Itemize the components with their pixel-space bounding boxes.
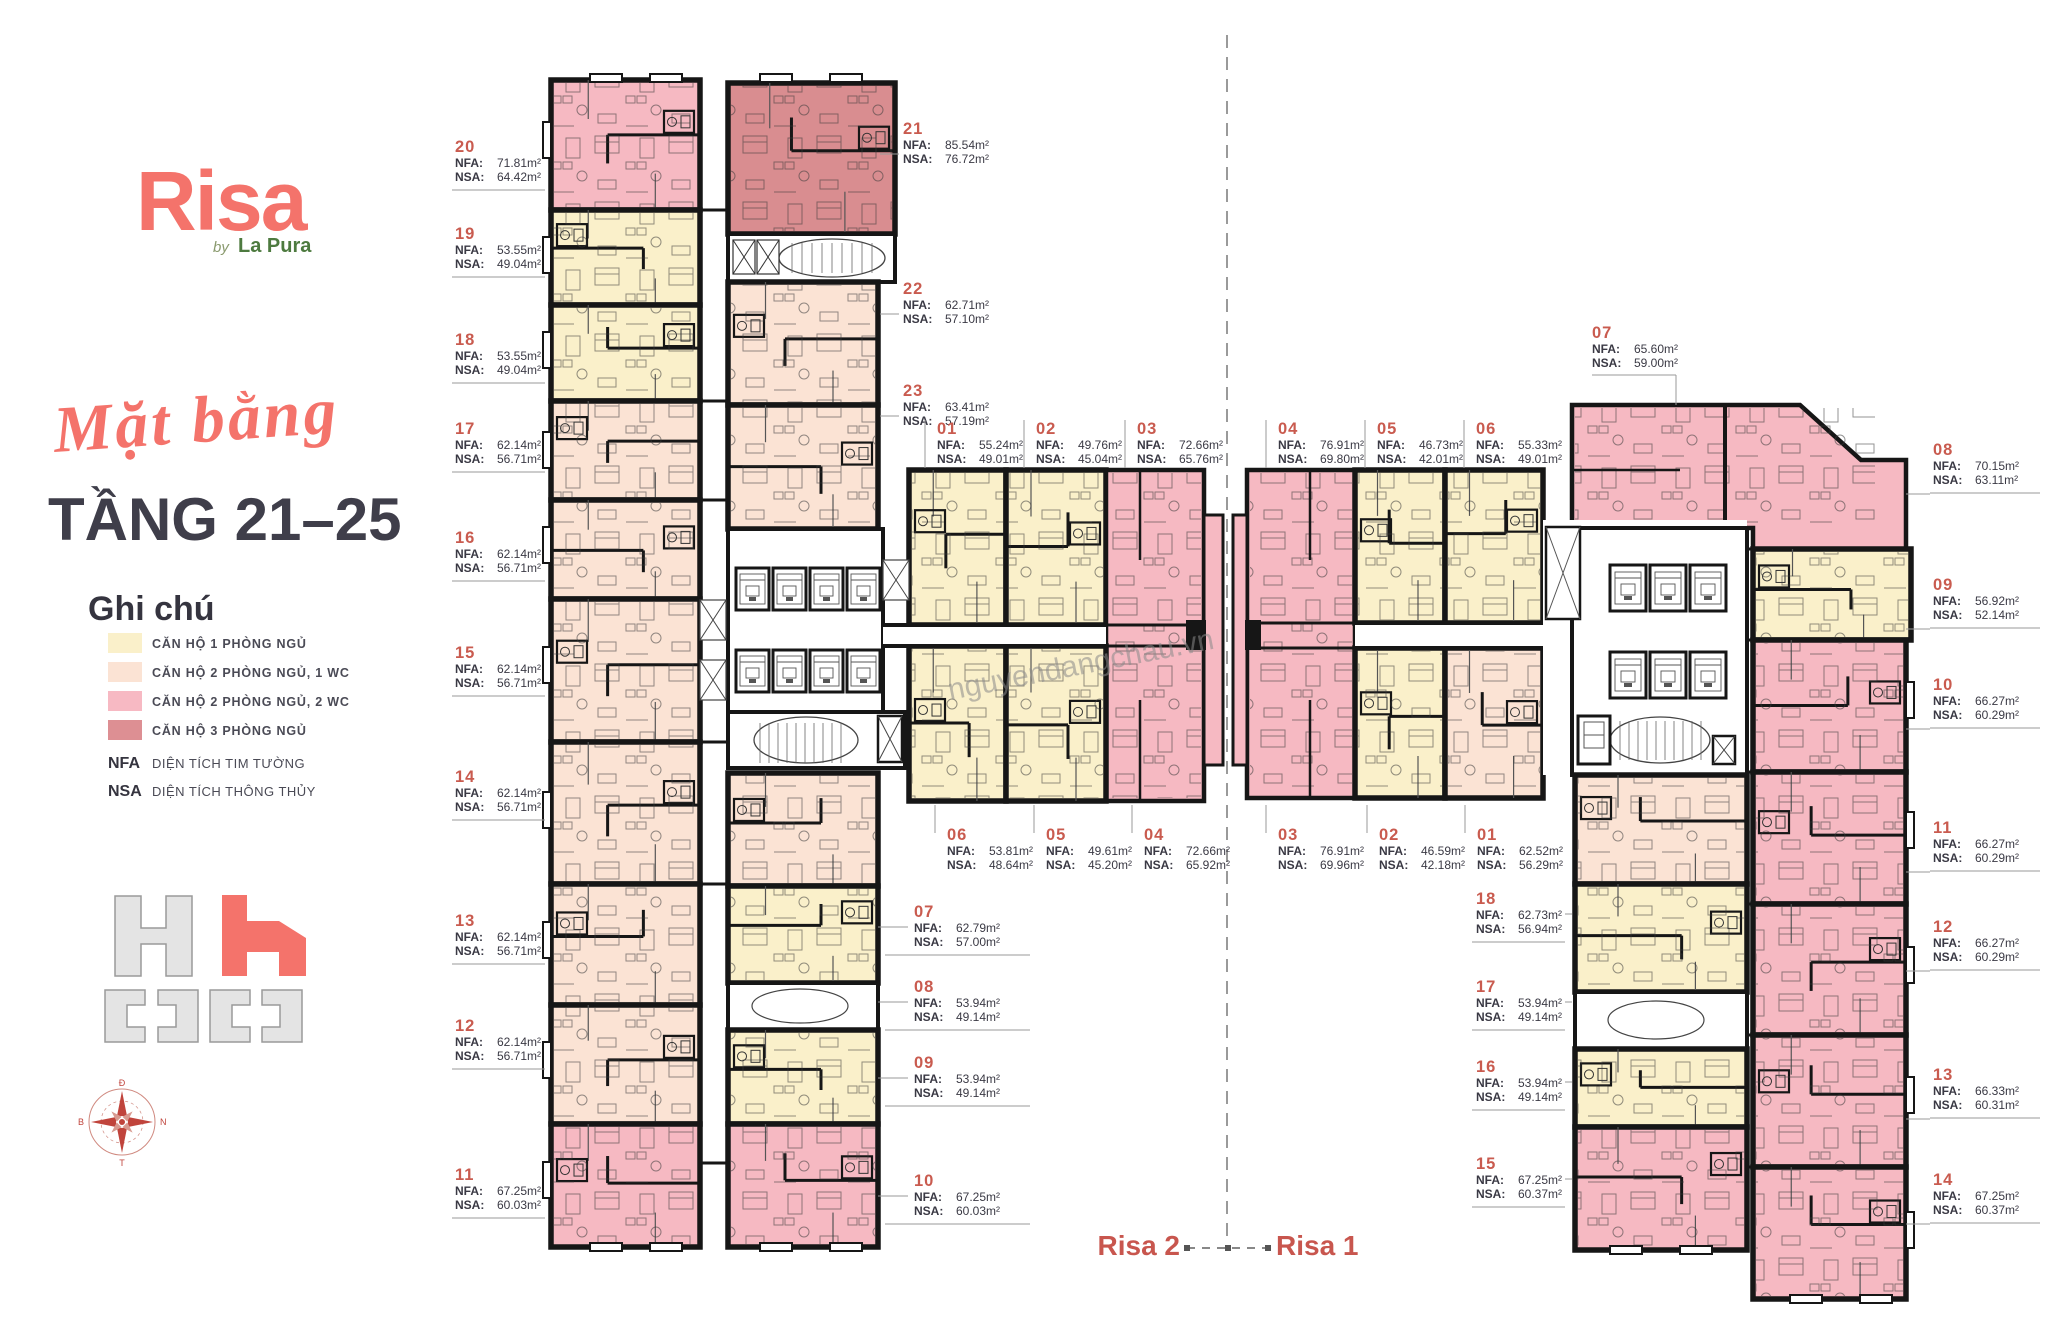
svg-text:CĂN HỘ 2 PHÒNG NGỦ, 1 WC: CĂN HỘ 2 PHÒNG NGỦ, 1 WC	[152, 665, 350, 680]
svg-text:60.03m²: 60.03m²	[497, 1198, 541, 1212]
svg-text:NSA:: NSA:	[1377, 452, 1406, 466]
svg-text:49.01m²: 49.01m²	[979, 452, 1023, 466]
svg-text:60.31m²: 60.31m²	[1975, 1098, 2019, 1112]
svg-text:Risa: Risa	[136, 154, 309, 248]
svg-text:NSA:: NSA:	[1933, 608, 1962, 622]
svg-text:59.00m²: 59.00m²	[1634, 356, 1678, 370]
svg-text:NFA:: NFA:	[1476, 438, 1504, 452]
svg-text:16: 16	[455, 529, 475, 547]
svg-text:NSA:: NSA:	[455, 170, 484, 184]
svg-text:49.14m²: 49.14m²	[1518, 1090, 1562, 1104]
svg-text:63.11m²: 63.11m²	[1975, 473, 2018, 487]
svg-text:NFA:: NFA:	[455, 156, 483, 170]
svg-text:NFA: NFA	[108, 755, 140, 772]
svg-text:NSA:: NSA:	[1144, 858, 1173, 872]
svg-text:NFA:: NFA:	[1933, 694, 1961, 708]
svg-text:NSA:: NSA:	[903, 312, 932, 326]
svg-text:13: 13	[1933, 1066, 1953, 1084]
svg-text:NFA:: NFA:	[1144, 844, 1172, 858]
svg-text:56.71m²: 56.71m²	[497, 800, 541, 814]
svg-text:19: 19	[455, 225, 475, 243]
svg-text:60.37m²: 60.37m²	[1975, 1203, 2019, 1217]
svg-text:NSA:: NSA:	[455, 257, 484, 271]
svg-text:NSA:: NSA:	[1933, 1203, 1962, 1217]
svg-text:85.54m²: 85.54m²	[945, 138, 989, 152]
svg-text:NFA:: NFA:	[947, 844, 975, 858]
svg-text:56.29m²: 56.29m²	[1519, 858, 1563, 872]
svg-text:53.81m²: 53.81m²	[989, 844, 1033, 858]
svg-text:NSA:: NSA:	[1476, 1187, 1505, 1201]
svg-text:03: 03	[1278, 826, 1298, 844]
svg-text:53.94m²: 53.94m²	[1518, 1076, 1562, 1090]
svg-text:60.37m²: 60.37m²	[1518, 1187, 1562, 1201]
svg-text:NFA:: NFA:	[914, 996, 942, 1010]
svg-text:60.29m²: 60.29m²	[1975, 708, 2019, 722]
svg-text:NSA:: NSA:	[1278, 452, 1307, 466]
svg-text:NFA:: NFA:	[903, 138, 931, 152]
svg-text:69.80m²: 69.80m²	[1320, 452, 1364, 466]
svg-text:NFA:: NFA:	[1278, 438, 1306, 452]
svg-text:63.41m²: 63.41m²	[945, 400, 989, 414]
svg-text:55.24m²: 55.24m²	[979, 438, 1023, 452]
svg-text:20: 20	[455, 138, 475, 156]
svg-text:13: 13	[455, 912, 475, 930]
svg-text:01: 01	[937, 420, 957, 438]
svg-text:60.29m²: 60.29m²	[1975, 851, 2019, 865]
svg-text:NSA: NSA	[108, 783, 142, 800]
svg-text:14: 14	[455, 768, 475, 786]
svg-text:NSA:: NSA:	[455, 944, 484, 958]
svg-text:67.25m²: 67.25m²	[1518, 1173, 1562, 1187]
svg-text:NFA:: NFA:	[455, 1184, 483, 1198]
svg-text:La Pura: La Pura	[238, 235, 312, 257]
svg-text:NFA:: NFA:	[1379, 844, 1407, 858]
svg-text:64.42m²: 64.42m²	[497, 170, 541, 184]
svg-text:NSA:: NSA:	[1476, 922, 1505, 936]
svg-text:69.96m²: 69.96m²	[1320, 858, 1364, 872]
svg-text:T: T	[119, 1158, 125, 1168]
svg-text:NFA:: NFA:	[455, 547, 483, 561]
svg-text:NSA:: NSA:	[914, 1204, 943, 1218]
svg-text:62.52m²: 62.52m²	[1519, 844, 1563, 858]
svg-text:45.04m²: 45.04m²	[1078, 452, 1122, 466]
svg-text:NFA:: NFA:	[455, 786, 483, 800]
svg-text:NFA:: NFA:	[1278, 844, 1306, 858]
svg-text:60.29m²: 60.29m²	[1975, 950, 2019, 964]
svg-text:53.94m²: 53.94m²	[956, 996, 1000, 1010]
svg-text:14: 14	[1933, 1171, 1953, 1189]
svg-text:62.14m²: 62.14m²	[497, 786, 541, 800]
svg-text:05: 05	[1046, 826, 1066, 844]
svg-text:49.14m²: 49.14m²	[956, 1086, 1000, 1100]
svg-text:48.64m²: 48.64m²	[989, 858, 1033, 872]
svg-text:NSA:: NSA:	[455, 452, 484, 466]
svg-text:56.71m²: 56.71m²	[497, 944, 541, 958]
svg-text:12: 12	[1933, 918, 1953, 936]
svg-text:NFA:: NFA:	[455, 662, 483, 676]
svg-text:02: 02	[1036, 420, 1056, 438]
svg-text:NFA:: NFA:	[1476, 908, 1504, 922]
svg-text:N: N	[160, 1117, 167, 1127]
svg-text:42.18m²: 42.18m²	[1421, 858, 1465, 872]
svg-text:NSA:: NSA:	[1476, 1010, 1505, 1024]
svg-text:NSA:: NSA:	[1476, 452, 1505, 466]
svg-text:by: by	[213, 239, 230, 256]
svg-text:16: 16	[1476, 1058, 1496, 1076]
svg-text:NFA:: NFA:	[1477, 844, 1505, 858]
svg-text:46.73m²: 46.73m²	[1419, 438, 1463, 452]
svg-text:49.04m²: 49.04m²	[497, 257, 541, 271]
svg-text:42.01m²: 42.01m²	[1419, 452, 1463, 466]
svg-text:NSA:: NSA:	[455, 561, 484, 575]
svg-text:53.94m²: 53.94m²	[956, 1072, 1000, 1086]
svg-text:62.14m²: 62.14m²	[497, 662, 541, 676]
svg-text:67.25m²: 67.25m²	[1975, 1189, 2019, 1203]
svg-text:56.92m²: 56.92m²	[1975, 594, 2019, 608]
svg-text:67.25m²: 67.25m²	[956, 1190, 1000, 1204]
svg-text:66.27m²: 66.27m²	[1975, 694, 2019, 708]
svg-text:NFA:: NFA:	[455, 349, 483, 363]
svg-text:53.55m²: 53.55m²	[497, 243, 541, 257]
svg-text:Đ: Đ	[119, 1078, 126, 1088]
svg-text:NFA:: NFA:	[1476, 996, 1504, 1010]
svg-text:NSA:: NSA:	[1476, 1090, 1505, 1104]
svg-text:NSA:: NSA:	[903, 414, 932, 428]
svg-text:NFA:: NFA:	[1046, 844, 1074, 858]
svg-text:NSA:: NSA:	[1933, 950, 1962, 964]
svg-text:55.33m²: 55.33m²	[1518, 438, 1562, 452]
svg-text:NFA:: NFA:	[1933, 1084, 1961, 1098]
svg-text:57.00m²: 57.00m²	[956, 935, 1000, 949]
svg-text:65.92m²: 65.92m²	[1186, 858, 1230, 872]
svg-text:Risa 1: Risa 1	[1276, 1230, 1359, 1261]
svg-text:72.66m²: 72.66m²	[1179, 438, 1223, 452]
svg-text:09: 09	[1933, 576, 1953, 594]
svg-text:NSA:: NSA:	[1278, 858, 1307, 872]
svg-text:56.71m²: 56.71m²	[497, 452, 541, 466]
svg-text:NSA:: NSA:	[455, 363, 484, 377]
svg-text:62.14m²: 62.14m²	[497, 547, 541, 561]
svg-text:NFA:: NFA:	[455, 243, 483, 257]
svg-text:NSA:: NSA:	[937, 452, 966, 466]
svg-text:04: 04	[1278, 420, 1298, 438]
svg-text:NFA:: NFA:	[1933, 1189, 1961, 1203]
svg-text:NSA:: NSA:	[914, 1086, 943, 1100]
svg-text:10: 10	[1933, 676, 1953, 694]
svg-text:CĂN HỘ 1 PHÒNG NGỦ: CĂN HỘ 1 PHÒNG NGỦ	[152, 636, 307, 651]
svg-text:60.03m²: 60.03m²	[956, 1204, 1000, 1218]
svg-text:NSA:: NSA:	[914, 1010, 943, 1024]
svg-text:17: 17	[455, 420, 475, 438]
svg-text:12: 12	[455, 1017, 475, 1035]
svg-text:B: B	[78, 1117, 84, 1127]
svg-text:18: 18	[1476, 890, 1496, 908]
svg-text:CĂN HỘ 3 PHÒNG NGỦ: CĂN HỘ 3 PHÒNG NGỦ	[152, 723, 307, 738]
svg-text:NFA:: NFA:	[1933, 936, 1961, 950]
svg-text:10: 10	[914, 1172, 934, 1190]
svg-text:CĂN HỘ 2 PHÒNG NGỦ, 2 WC: CĂN HỘ 2 PHÒNG NGỦ, 2 WC	[152, 694, 350, 709]
svg-text:22: 22	[903, 280, 923, 298]
svg-text:NSA:: NSA:	[455, 676, 484, 690]
svg-text:NFA:: NFA:	[914, 1072, 942, 1086]
svg-text:72.66m²: 72.66m²	[1186, 844, 1230, 858]
svg-text:NSA:: NSA:	[947, 858, 976, 872]
svg-text:02: 02	[1379, 826, 1399, 844]
svg-text:07: 07	[914, 903, 934, 921]
svg-text:49.14m²: 49.14m²	[956, 1010, 1000, 1024]
svg-text:NSA:: NSA:	[1379, 858, 1408, 872]
svg-text:49.14m²: 49.14m²	[1518, 1010, 1562, 1024]
svg-text:65.60m²: 65.60m²	[1634, 342, 1678, 356]
svg-text:NSA:: NSA:	[455, 800, 484, 814]
svg-text:66.27m²: 66.27m²	[1975, 936, 2019, 950]
svg-text:62.14m²: 62.14m²	[497, 438, 541, 452]
svg-text:NFA:: NFA:	[1377, 438, 1405, 452]
svg-text:NFA:: NFA:	[903, 400, 931, 414]
svg-text:17: 17	[1476, 978, 1496, 996]
svg-text:57.10m²: 57.10m²	[945, 312, 989, 326]
svg-text:53.94m²: 53.94m²	[1518, 996, 1562, 1010]
svg-text:11: 11	[1933, 819, 1952, 837]
svg-text:15: 15	[1476, 1155, 1496, 1173]
svg-text:62.79m²: 62.79m²	[956, 921, 1000, 935]
svg-text:NFA:: NFA:	[1933, 837, 1961, 851]
svg-text:15: 15	[455, 644, 475, 662]
svg-text:NSA:: NSA:	[914, 935, 943, 949]
svg-text:NFA:: NFA:	[1476, 1173, 1504, 1187]
svg-text:66.33m²: 66.33m²	[1975, 1084, 2019, 1098]
svg-text:49.01m²: 49.01m²	[1518, 452, 1562, 466]
svg-text:76.91m²: 76.91m²	[1320, 438, 1364, 452]
svg-text:66.27m²: 66.27m²	[1975, 837, 2019, 851]
svg-text:62.14m²: 62.14m²	[497, 1035, 541, 1049]
svg-text:03: 03	[1137, 420, 1157, 438]
svg-text:56.71m²: 56.71m²	[497, 676, 541, 690]
svg-text:67.25m²: 67.25m²	[497, 1184, 541, 1198]
svg-text:53.55m²: 53.55m²	[497, 349, 541, 363]
svg-text:NFA:: NFA:	[1933, 594, 1961, 608]
svg-text:21: 21	[903, 120, 923, 138]
svg-text:05: 05	[1377, 420, 1397, 438]
svg-text:NFA:: NFA:	[914, 1190, 942, 1204]
svg-text:49.04m²: 49.04m²	[497, 363, 541, 377]
svg-text:62.73m²: 62.73m²	[1518, 908, 1562, 922]
svg-text:06: 06	[1476, 420, 1496, 438]
svg-text:56.71m²: 56.71m²	[497, 561, 541, 575]
svg-text:NFA:: NFA:	[914, 921, 942, 935]
svg-text:11: 11	[455, 1166, 474, 1184]
svg-text:NFA:: NFA:	[903, 298, 931, 312]
svg-text:08: 08	[1933, 441, 1953, 459]
svg-text:71.81m²: 71.81m²	[497, 156, 541, 170]
svg-text:45.20m²: 45.20m²	[1088, 858, 1132, 872]
svg-text:49.76m²: 49.76m²	[1078, 438, 1122, 452]
svg-text:NSA:: NSA:	[1933, 708, 1962, 722]
svg-text:56.94m²: 56.94m²	[1518, 922, 1562, 936]
svg-text:62.14m²: 62.14m²	[497, 930, 541, 944]
svg-text:NFA:: NFA:	[1476, 1076, 1504, 1090]
svg-text:62.71m²: 62.71m²	[945, 298, 989, 312]
svg-text:NSA:: NSA:	[1933, 851, 1962, 865]
svg-text:46.59m²: 46.59m²	[1421, 844, 1465, 858]
svg-text:07: 07	[1592, 324, 1612, 342]
svg-text:09: 09	[914, 1054, 934, 1072]
svg-text:NSA:: NSA:	[1137, 452, 1166, 466]
svg-text:NSA:: NSA:	[1477, 858, 1506, 872]
svg-text:NSA:: NSA:	[1046, 858, 1075, 872]
svg-text:NFA:: NFA:	[455, 1035, 483, 1049]
svg-text:NSA:: NSA:	[1933, 473, 1962, 487]
svg-text:70.15m²: 70.15m²	[1975, 459, 2019, 473]
svg-text:NFA:: NFA:	[937, 438, 965, 452]
svg-text:06: 06	[947, 826, 967, 844]
svg-text:01: 01	[1477, 826, 1497, 844]
svg-text:18: 18	[455, 331, 475, 349]
svg-text:NSA:: NSA:	[1592, 356, 1621, 370]
svg-text:Ghi chú: Ghi chú	[88, 590, 215, 628]
svg-text:NSA:: NSA:	[903, 152, 932, 166]
svg-text:Risa 2: Risa 2	[1098, 1230, 1181, 1261]
svg-text:NFA:: NFA:	[455, 930, 483, 944]
svg-text:08: 08	[914, 978, 934, 996]
svg-text:NFA:: NFA:	[1592, 342, 1620, 356]
svg-text:DIỆN TÍCH TIM TƯỜNG: DIỆN TÍCH TIM TƯỜNG	[152, 756, 305, 771]
svg-text:NFA:: NFA:	[1137, 438, 1165, 452]
svg-text:65.76m²: 65.76m²	[1179, 452, 1223, 466]
svg-text:76.91m²: 76.91m²	[1320, 844, 1364, 858]
svg-text:TẦNG 21–25: TẦNG 21–25	[48, 486, 402, 553]
svg-text:DIỆN TÍCH THÔNG THỦY: DIỆN TÍCH THÔNG THỦY	[152, 784, 316, 799]
svg-text:NSA:: NSA:	[455, 1198, 484, 1212]
svg-text:23: 23	[903, 382, 923, 400]
svg-text:NFA:: NFA:	[1036, 438, 1064, 452]
svg-text:04: 04	[1144, 826, 1164, 844]
svg-text:76.72m²: 76.72m²	[945, 152, 989, 166]
svg-text:NSA:: NSA:	[1933, 1098, 1962, 1112]
svg-text:52.14m²: 52.14m²	[1975, 608, 2019, 622]
svg-text:NSA:: NSA:	[1036, 452, 1065, 466]
svg-text:NSA:: NSA:	[455, 1049, 484, 1063]
svg-text:NFA:: NFA:	[455, 438, 483, 452]
svg-text:NFA:: NFA:	[1933, 459, 1961, 473]
svg-text:56.71m²: 56.71m²	[497, 1049, 541, 1063]
svg-text:49.61m²: 49.61m²	[1088, 844, 1132, 858]
